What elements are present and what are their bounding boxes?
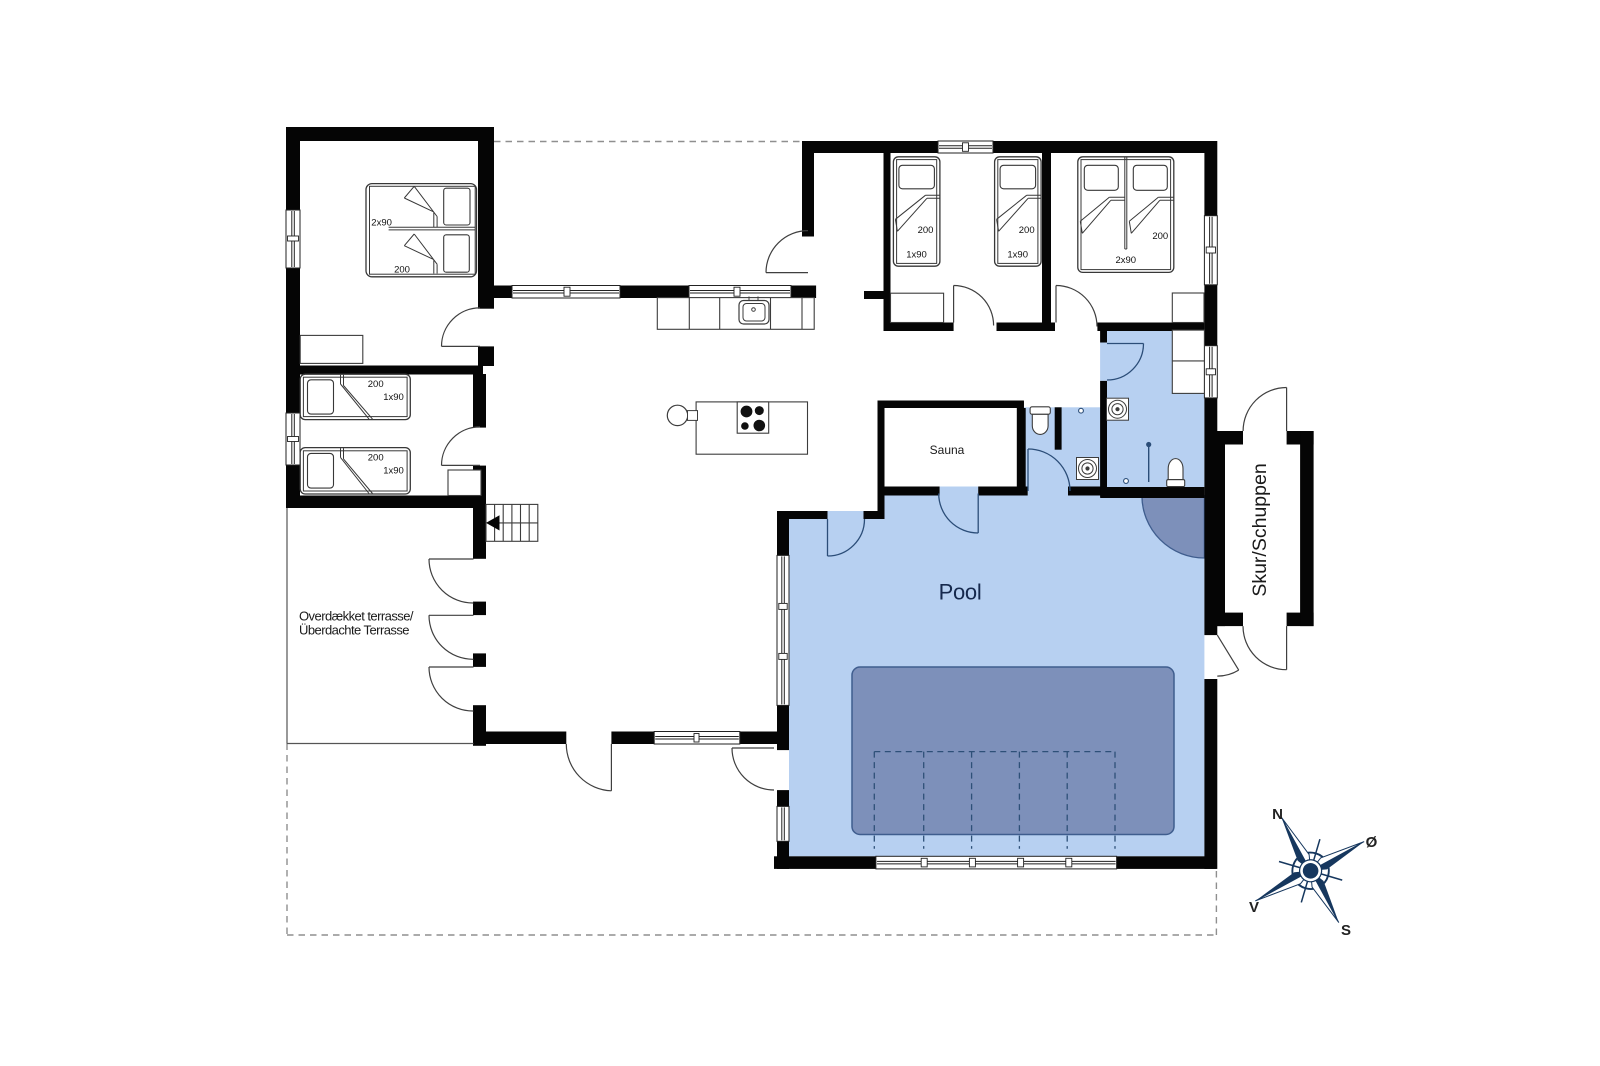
svg-text:200: 200 <box>368 379 384 390</box>
svg-text:1x90: 1x90 <box>383 392 404 403</box>
svg-text:Ø: Ø <box>1366 834 1378 851</box>
svg-text:Skur/Schuppen: Skur/Schuppen <box>1249 463 1271 596</box>
svg-text:Overdækket terrasse/: Overdækket terrasse/ <box>299 608 414 623</box>
svg-text:1x90: 1x90 <box>906 250 927 261</box>
svg-text:2x90: 2x90 <box>1115 255 1136 266</box>
svg-text:2x90: 2x90 <box>371 218 392 229</box>
svg-text:200: 200 <box>368 452 384 463</box>
svg-text:200: 200 <box>1152 231 1168 242</box>
svg-text:N: N <box>1272 806 1283 823</box>
svg-text:1x90: 1x90 <box>1007 250 1028 261</box>
svg-text:V: V <box>1249 899 1259 916</box>
svg-text:S: S <box>1341 922 1351 939</box>
svg-text:Überdachte Terrasse: Überdachte Terrasse <box>299 623 409 638</box>
svg-text:200: 200 <box>1019 225 1035 236</box>
svg-text:200: 200 <box>394 265 410 276</box>
svg-text:1x90: 1x90 <box>383 465 404 476</box>
svg-text:Pool: Pool <box>939 580 982 605</box>
svg-text:200: 200 <box>918 225 934 236</box>
svg-text:Sauna: Sauna <box>930 443 965 457</box>
